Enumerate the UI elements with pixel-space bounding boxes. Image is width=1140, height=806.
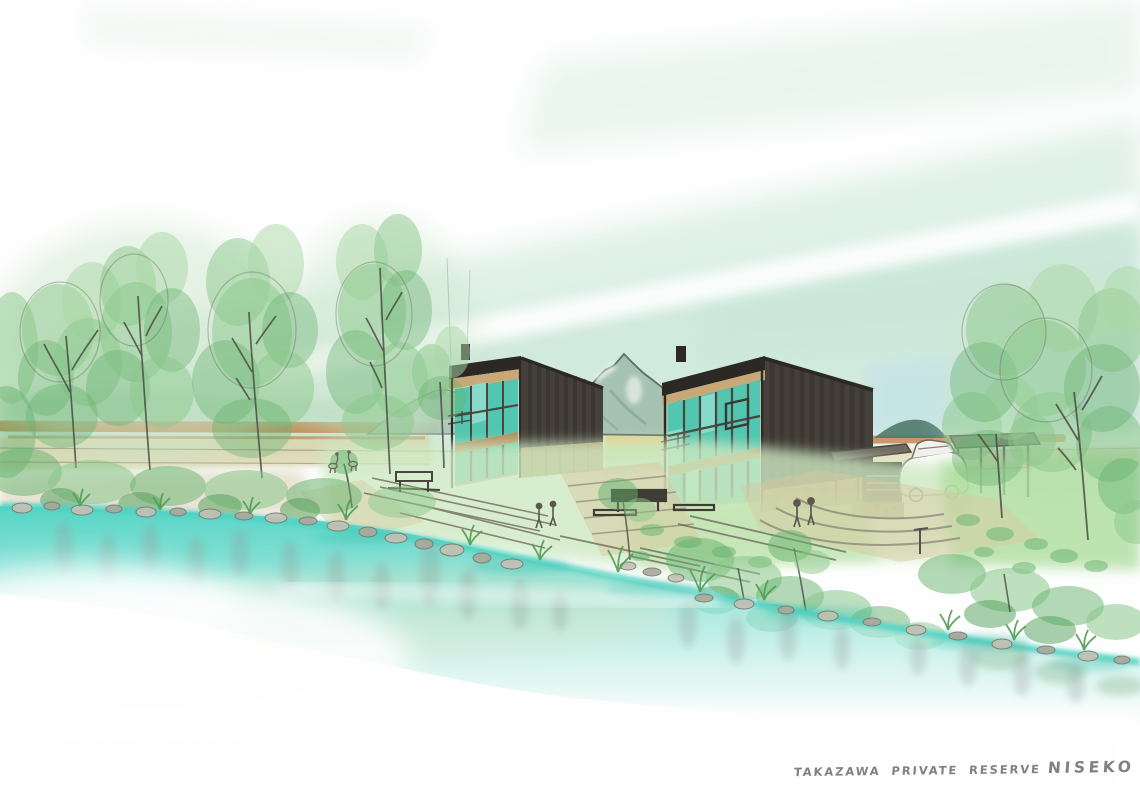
sketch-illustration <box>0 0 1140 806</box>
cabin-right-chimney <box>676 346 686 362</box>
artwork-canvas: TAKAZAWA PRIVATE RESERVENISEKO <box>0 0 1140 806</box>
caption-location: NISEKO <box>1047 758 1135 777</box>
caption-title: TAKAZAWA PRIVATE RESERVE <box>793 762 1041 779</box>
